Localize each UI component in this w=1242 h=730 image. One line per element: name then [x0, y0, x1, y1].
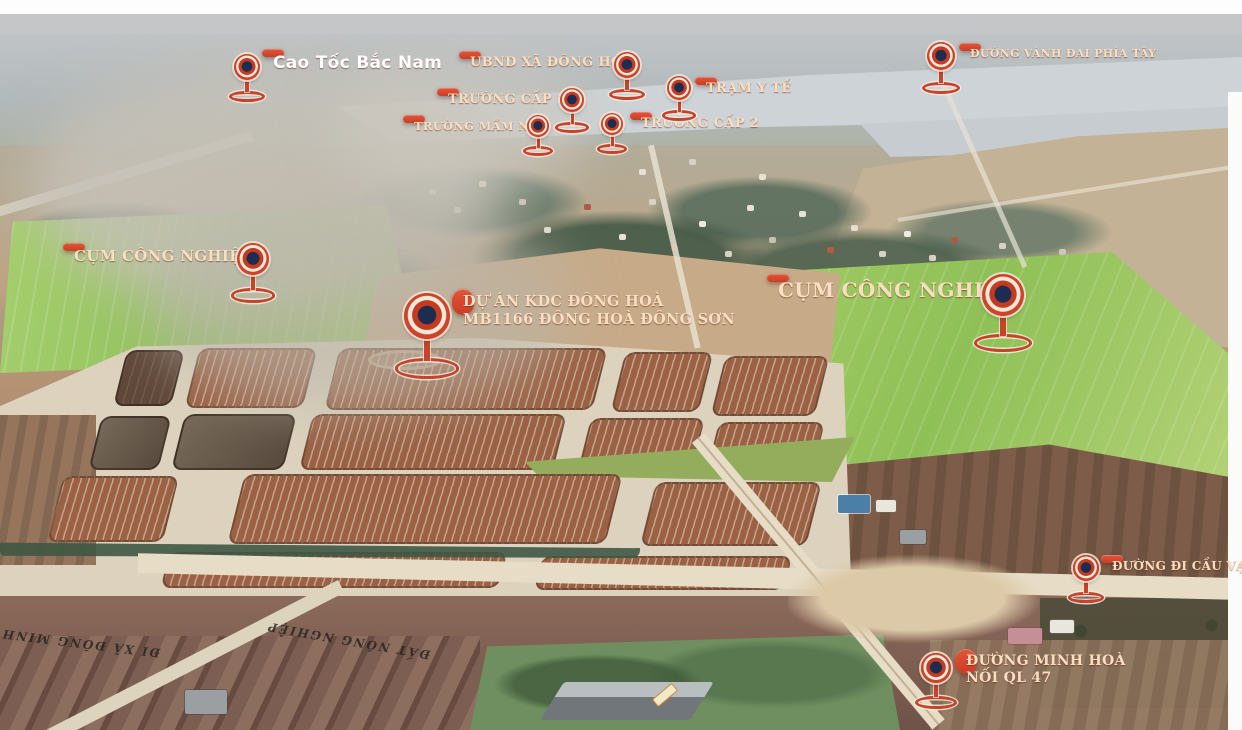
pin-base [555, 122, 588, 133]
pin-head [921, 653, 951, 683]
location-pin-icon [596, 113, 629, 156]
map-label-cum-cong-nghiep-left: CỤM CÔNG NGHIỆP [63, 243, 85, 251]
location-pin-icon [229, 243, 277, 305]
ground-text-dat-nong-nghiep: ĐẤT NÔNG NGHIỆP [265, 619, 431, 662]
map-label-ubnd-xa-dong-hoa: UBND XÃ ĐÔNG HOÀ [459, 51, 481, 59]
pin-base [395, 358, 458, 378]
pin-head [667, 76, 691, 100]
pin-head [560, 88, 584, 112]
pin-head [982, 274, 1024, 316]
pin-head [614, 52, 640, 78]
aerial-masterplan-photo: Cao Tốc Bắc NamUBND XÃ ĐÔNG HOÀTRƯỜNG CẤ… [0, 0, 1242, 730]
pin-head [927, 42, 955, 70]
location-pin-icon [393, 293, 462, 383]
map-label-text: NỐI QL 47 [966, 670, 1052, 687]
map-label-duong-vanh-dai-phia-tay: ĐƯỜNG VÀNH ĐAI PHÍA TÂY [959, 43, 981, 51]
location-pin-icon [914, 653, 959, 712]
map-label-text: Cao Tốc Bắc Nam [273, 53, 442, 74]
map-label-text: ĐƯỜNG ĐI CẦU VẠN [1112, 559, 1242, 574]
pin-head [1073, 555, 1099, 581]
map-label-text: TRƯỜNG CẤP 1 [448, 92, 566, 108]
pin-base [231, 288, 275, 302]
map-label-truong-cap-1: TRƯỜNG CẤP 1 [437, 88, 459, 96]
pin-head [237, 243, 269, 275]
map-label-tram-y-te: TRẠM Y TẾ [695, 77, 717, 85]
map-label-truong-mam-non: TRƯỜNG MẦM NON [403, 115, 425, 123]
map-label-text: ĐƯỜNG MINH HOÀ [966, 653, 1126, 670]
annotation-layer: Cao Tốc Bắc NamUBND XÃ ĐÔNG HOÀTRƯỜNG CẤ… [0, 0, 1242, 730]
pin-base [974, 334, 1032, 352]
pin-head [527, 115, 549, 137]
pin-base [609, 89, 645, 100]
pin-base [523, 146, 553, 156]
ground-text-di-xa-dong-minh: ĐI XÃ ĐÔNG MINH [0, 627, 161, 660]
pin-base [597, 144, 627, 154]
pin-head [234, 54, 260, 80]
location-pin-icon [1067, 555, 1106, 606]
pin-base [229, 91, 265, 102]
location-pin-icon [554, 88, 590, 135]
pin-head [404, 293, 450, 339]
pin-base [922, 82, 961, 94]
map-label-text: MB1166 ĐÔNG HOÀ ĐÔNG SƠN [463, 311, 735, 329]
location-pin-icon [661, 76, 697, 123]
pin-base [662, 110, 695, 121]
map-label-text: TRƯỜNG CẤP 2 [641, 116, 759, 132]
pin-head [601, 113, 623, 135]
location-pin-icon [972, 274, 1035, 356]
map-label-text: TRẠM Y TẾ [706, 81, 792, 97]
location-pin-icon [920, 42, 962, 97]
map-label-text: DỰ ÁN KDC ĐÔNG HOÀ [463, 293, 664, 311]
pin-base [1068, 592, 1104, 603]
pin-base [915, 696, 956, 709]
map-label-truong-cap-2: TRƯỜNG CẤP 2 [630, 112, 652, 120]
map-label-cum-cong-nghiep-right: CỤM CÔNG NGHIỆP [767, 274, 789, 282]
location-pin-icon [228, 54, 267, 105]
location-pin-icon [608, 52, 647, 103]
map-label-text: ĐƯỜNG VÀNH ĐAI PHÍA TÂY [970, 47, 1156, 60]
map-label-text: CỤM CÔNG NGHIỆP [74, 247, 253, 265]
location-pin-icon [522, 115, 555, 158]
